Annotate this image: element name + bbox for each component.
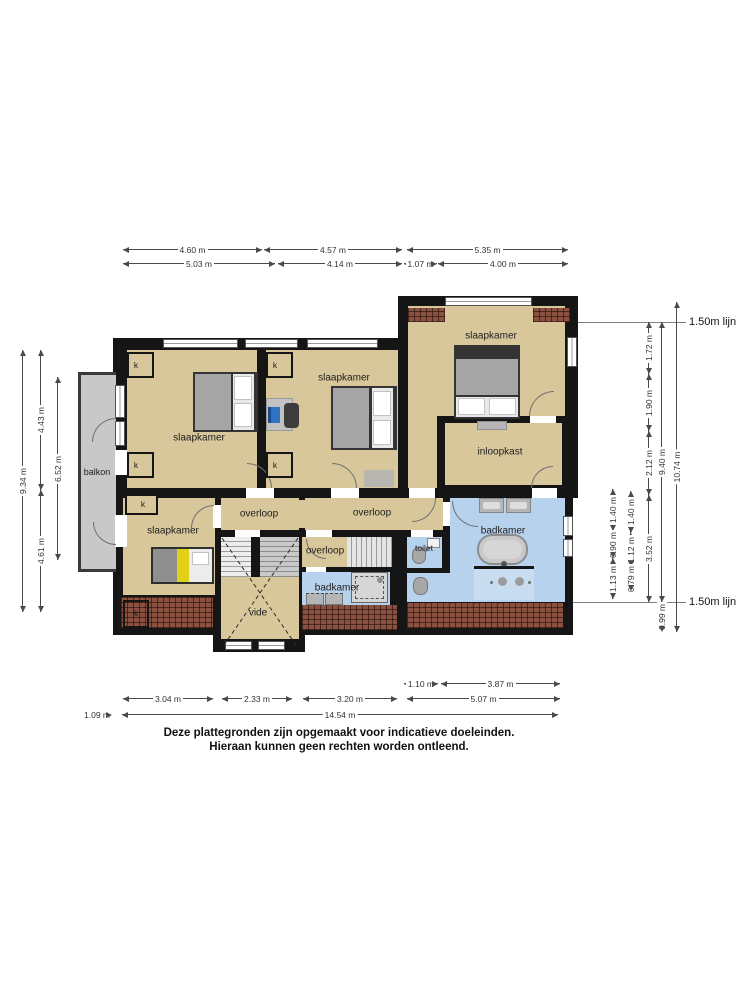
roof-brick-corner-left <box>408 308 445 322</box>
dim-top: 5.35 m <box>407 249 568 250</box>
room-label-badkamer: badkamer <box>315 583 359 594</box>
room-label-slaapkamer: slaapkamer <box>173 433 225 444</box>
dim-right: 2.12 m <box>648 431 649 495</box>
doormat <box>364 470 394 487</box>
door-opening <box>443 502 450 526</box>
bed-double <box>193 372 258 432</box>
disclaimer-line1: Deze plattegronden zijn opgemaakt voor i… <box>164 727 515 739</box>
door-opening <box>411 530 433 537</box>
room-label-slaapkamer: slaapkamer <box>147 526 199 537</box>
dim-bottom: 3.20 m <box>303 698 397 699</box>
roof-brick-right <box>407 603 563 628</box>
closet-label: k <box>134 608 138 618</box>
room-label-balkon: balkon <box>84 467 111 477</box>
dim-bottom: 1.09 m <box>82 714 112 715</box>
room-label-slaapkamer: slaapkamer <box>465 331 517 342</box>
disclaimer-line2: Hieraan kunnen geen rechten worden ontle… <box>209 741 468 753</box>
passage-floor <box>299 500 305 528</box>
window <box>163 339 238 348</box>
dim-bottom: 14.54 m <box>122 714 558 715</box>
door-opening <box>409 488 435 498</box>
window <box>307 339 378 348</box>
window <box>445 297 532 306</box>
dim-right: 1.13 m <box>612 558 613 599</box>
closet-label: k <box>273 360 277 370</box>
dim-right: 0.99 m <box>661 602 662 632</box>
closet <box>266 352 293 378</box>
bathtub <box>477 534 528 565</box>
door-opening <box>235 530 260 537</box>
ref-label-150-top: 1.50m lijn <box>689 316 736 328</box>
dim-bottom: 1.10 m <box>404 683 438 684</box>
vanity <box>474 566 534 600</box>
dim-right: 10.74 m <box>676 302 677 632</box>
desk-chair <box>284 403 299 428</box>
window <box>115 421 125 446</box>
closet <box>127 352 154 378</box>
dim-bottom: 3.87 m <box>441 683 560 684</box>
bed-bench <box>477 421 507 430</box>
door-opening <box>306 567 326 572</box>
dim-left: 4.43 m <box>40 350 41 490</box>
door-opening <box>115 450 127 475</box>
room-label-slaapkamer: slaapkamer <box>318 373 370 384</box>
dim-bottom: 5.07 m <box>407 698 560 699</box>
door-opening <box>530 416 556 423</box>
roof-brick-corner-right <box>533 308 570 322</box>
dim-right: 3.52 m <box>648 495 649 602</box>
room-label-overloop: overloop <box>240 509 278 520</box>
dim-bottom: 2.33 m <box>222 698 292 699</box>
ref-label-150-bottom: 1.50m lijn <box>689 596 736 608</box>
roof-brick-mid <box>302 605 397 630</box>
bed-double <box>331 386 397 450</box>
dim-right: 0.79 m <box>630 567 631 591</box>
window <box>567 337 577 367</box>
room-label-toilet: toilet <box>415 543 433 553</box>
dim-right: 1.40 m <box>612 489 613 531</box>
dim-right: 1.72 m <box>648 322 649 374</box>
room-label-badkamer: badkamer <box>481 526 525 537</box>
dim-right: 0.90 m <box>612 531 613 558</box>
dim-right: 9.40 m <box>661 322 662 602</box>
door-opening <box>246 488 274 498</box>
dim-right: 1.12 m <box>630 533 631 567</box>
dim-top: 4.14 m <box>278 263 402 264</box>
dim-bottom: 3.04 m <box>123 698 213 699</box>
staircase-upper <box>347 537 392 567</box>
dim-top: 4.00 m <box>438 263 568 264</box>
corridor-floor <box>408 416 437 488</box>
door-opening <box>306 530 332 537</box>
shower-head <box>377 577 383 583</box>
door-opening <box>115 515 127 547</box>
closet <box>266 452 293 478</box>
room-label-inloopkast: inloopkast <box>477 447 522 458</box>
dim-top: 4.60 m <box>123 249 262 250</box>
door-opening <box>331 488 359 498</box>
dim-left: 6.52 m <box>57 377 58 560</box>
sink <box>325 593 343 605</box>
bed-single <box>151 547 214 584</box>
closet-label: k <box>134 460 138 470</box>
dim-left: 4.61 m <box>40 490 41 612</box>
dim-right: 1.40 m <box>630 491 631 533</box>
window <box>563 516 573 536</box>
closet-label: k <box>134 360 138 370</box>
window <box>115 385 125 418</box>
window <box>245 339 298 348</box>
floorplan-page: balkon <box>0 0 750 1000</box>
dim-top: 1.07 m <box>404 263 437 264</box>
closet-label: k <box>141 499 145 509</box>
dim-top: 5.03 m <box>123 263 275 264</box>
sink <box>306 593 324 605</box>
door-opening <box>532 488 557 498</box>
laptop <box>268 407 280 423</box>
sink <box>479 498 504 513</box>
ref-line-150-top <box>578 322 686 323</box>
room-label-overloop: overloop <box>353 508 391 519</box>
dim-right: 1.90 m <box>648 374 649 431</box>
ref-line-150-bottom <box>573 602 686 603</box>
sink <box>506 498 531 513</box>
window <box>563 539 573 557</box>
dim-top: 4.57 m <box>264 249 402 250</box>
vide-cross <box>221 537 299 649</box>
room-label-vide: vide <box>249 608 267 619</box>
room-label-overloop: overloop <box>306 546 344 557</box>
closet <box>127 452 154 478</box>
bed-double <box>454 345 520 419</box>
door-opening <box>213 505 221 528</box>
closet-label: k <box>273 460 277 470</box>
dim-left: 9.34 m <box>22 350 23 612</box>
toilet-bowl <box>413 577 428 595</box>
